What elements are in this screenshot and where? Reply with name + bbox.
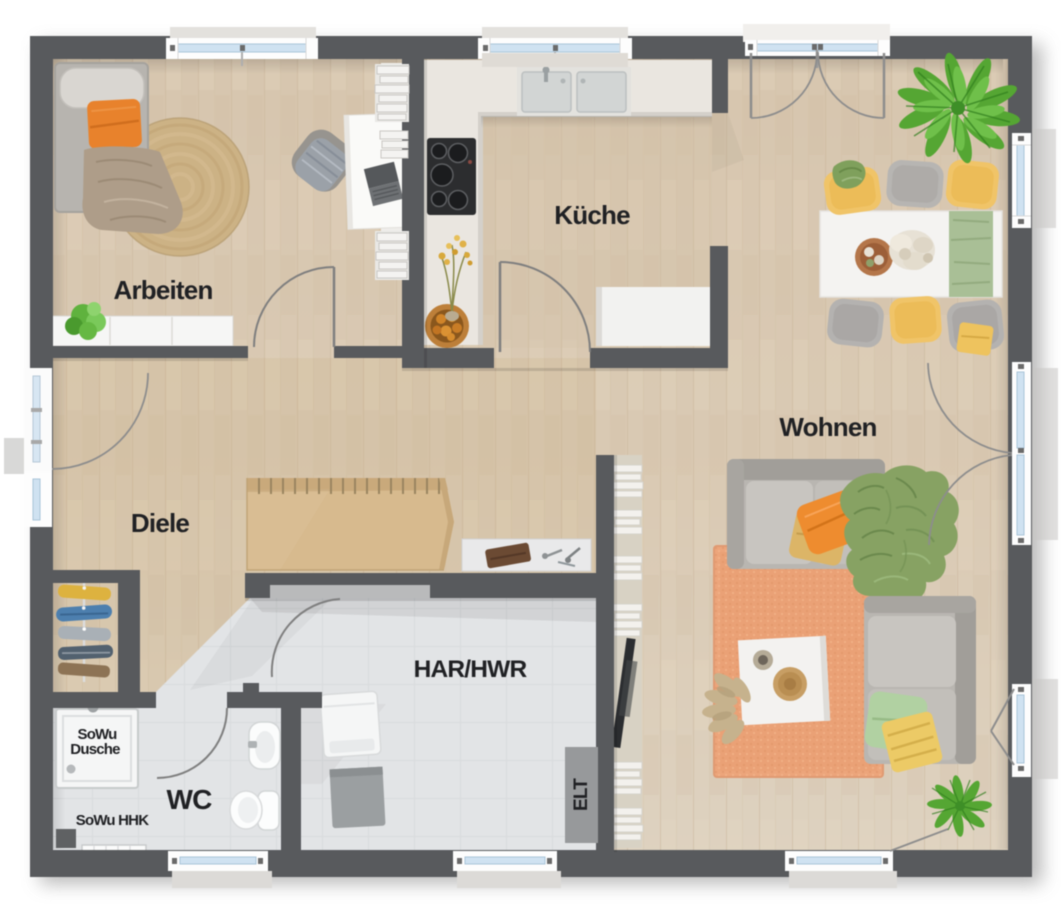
svg-text:ELT: ELT [571,778,592,811]
svg-text:Küche: Küche [554,200,630,230]
svg-text:Dusche: Dusche [70,741,120,758]
svg-text:Wohnen: Wohnen [779,412,876,442]
svg-text:SoWu HHK: SoWu HHK [76,812,149,829]
svg-text:HAR/HWR: HAR/HWR [414,656,528,683]
svg-text:Diele: Diele [131,508,189,538]
svg-text:Arbeiten: Arbeiten [113,275,212,305]
svg-text:WC: WC [166,784,212,815]
